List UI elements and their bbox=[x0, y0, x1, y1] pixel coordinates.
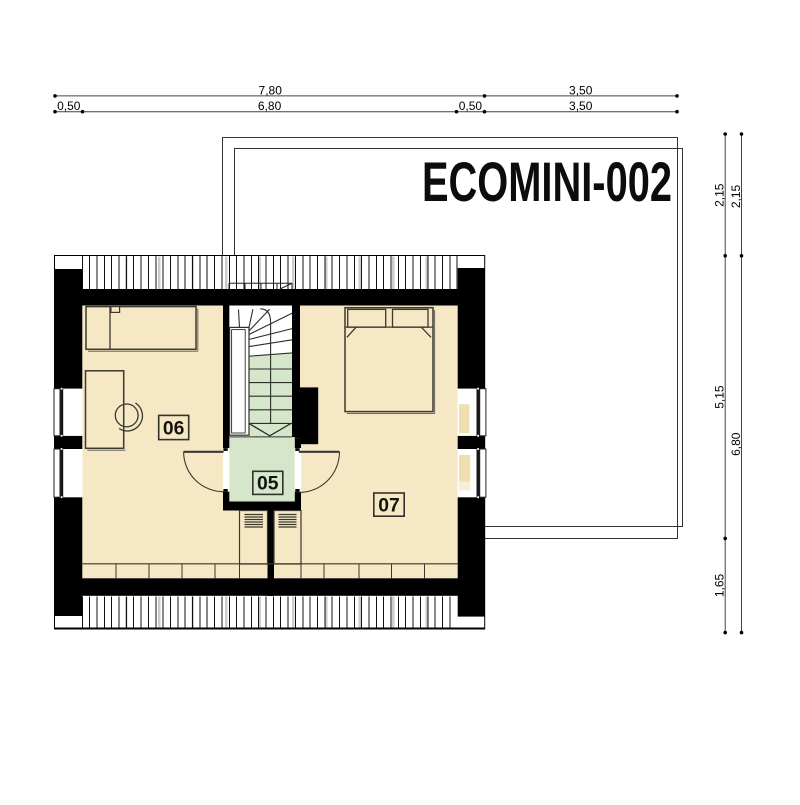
svg-text:0,50: 0,50 bbox=[57, 99, 81, 113]
svg-text:7,80: 7,80 bbox=[259, 83, 283, 97]
svg-text:0,50: 0,50 bbox=[459, 99, 483, 113]
svg-text:3,50: 3,50 bbox=[569, 83, 593, 97]
svg-text:07: 07 bbox=[378, 495, 400, 516]
svg-text:2,15: 2,15 bbox=[713, 183, 727, 207]
svg-text:2,15: 2,15 bbox=[729, 184, 743, 208]
svg-text:6,80: 6,80 bbox=[729, 432, 743, 456]
svg-text:1,65: 1,65 bbox=[713, 573, 727, 597]
svg-text:5,15: 5,15 bbox=[713, 385, 727, 409]
svg-text:ECOMINI-002: ECOMINI-002 bbox=[422, 151, 672, 213]
svg-text:3,50: 3,50 bbox=[569, 99, 593, 113]
svg-text:06: 06 bbox=[163, 418, 185, 439]
svg-text:6,80: 6,80 bbox=[258, 99, 282, 113]
svg-text:05: 05 bbox=[257, 474, 279, 495]
